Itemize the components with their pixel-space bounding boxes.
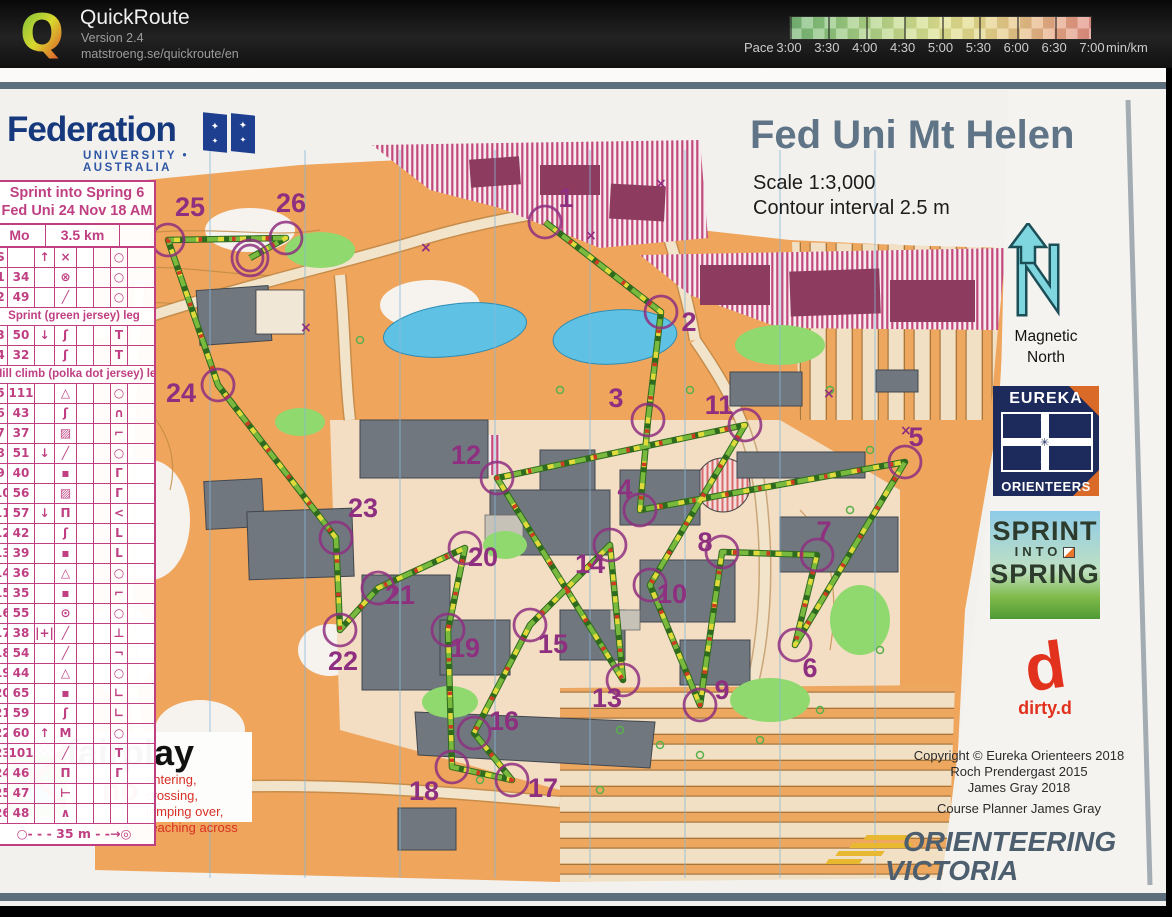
control-number: 6 — [802, 653, 817, 683]
dirtyd-letter-icon: d — [1006, 631, 1084, 700]
control-number: 12 — [451, 440, 481, 470]
control-number: 4 — [617, 474, 632, 504]
map-contour-interval: Contour interval 2.5 m — [753, 197, 950, 220]
svg-text:✦: ✦ — [212, 136, 219, 146]
pace-tick — [1055, 17, 1057, 39]
control-number: 22 — [328, 646, 358, 676]
pace-label: 6:00 — [996, 40, 1036, 55]
pace-tick — [828, 17, 830, 39]
control-number: 25 — [175, 192, 205, 222]
pace-tick — [790, 17, 792, 39]
svg-text:×: × — [420, 240, 432, 256]
control-number: 15 — [538, 629, 568, 659]
svg-text:×: × — [300, 320, 312, 336]
control-description-row: 643ʃ∩ — [0, 404, 154, 424]
control-description-row: 2547⊢ — [0, 784, 154, 804]
control-number: 5 — [908, 422, 923, 452]
pace-scale-labels: Pace3:003:304:004:305:005:306:006:307:00… — [744, 40, 1172, 58]
control-description-row: 2260↑M○ — [0, 724, 154, 744]
control-description-row: 134⊗○ — [0, 268, 154, 288]
ov-logo-line1: ORIENTEERING — [903, 826, 1116, 858]
control-description-row: 1854╱¬ — [0, 644, 154, 664]
control-number: 21 — [385, 580, 415, 610]
control-number: 10 — [657, 579, 687, 609]
quickroute-logo-icon: Q — [14, 4, 72, 64]
control-rows: S↑×○134⊗○249╱○Sprint (green jersey) leg3… — [0, 248, 154, 824]
control-number: 2 — [681, 307, 696, 337]
sprint-into-spring-logo: SPRINT INTO SPRING — [990, 511, 1100, 619]
svg-text:✦: ✦ — [240, 135, 247, 145]
map-scale: Scale 1:3,000 — [753, 172, 875, 195]
scan-paper-edge-top — [0, 68, 1166, 82]
course-planner-text: Course Planner James Gray — [900, 801, 1138, 816]
pace-label: 3:30 — [807, 40, 847, 55]
control-number: 23 — [348, 493, 378, 523]
eureka-orienteers-logo: EUREKA ✳ ✳ ✳ ✳ ✳ ORIENTEERS — [993, 386, 1099, 496]
federation-university-logo: Federation UNIVERSITY • AUSTRALIA ✦ ✦ ✦ … — [5, 110, 265, 172]
control-number: 24 — [166, 378, 196, 408]
control-description-row: 851↓╱○ — [0, 444, 154, 464]
control-number: 20 — [468, 542, 498, 572]
sprint-logo-line1: SPRINT — [990, 517, 1100, 545]
control-number: 26 — [276, 188, 306, 218]
control-number: 11 — [705, 390, 734, 420]
event-name: Sprint into Spring 6 — [0, 184, 154, 202]
pace-tick — [979, 17, 981, 39]
control-number: 16 — [489, 706, 519, 736]
app-title: QuickRoute — [80, 6, 190, 30]
control-description-row: S↑×○ — [0, 248, 154, 268]
control-description-row: 2065▪∟ — [0, 684, 154, 704]
control-number: 13 — [592, 683, 622, 713]
control-description-row: 249╱○ — [0, 288, 154, 308]
control-description-row: 1436△○ — [0, 564, 154, 584]
magnetic-north-label: Magnetic North — [998, 326, 1094, 368]
pace-gradient-bar — [789, 16, 1092, 40]
magnetic-north-icon — [1004, 223, 1070, 318]
control-description-row: 1944△○ — [0, 664, 154, 684]
ov-logo-line2: VICTORIA — [885, 855, 1018, 887]
control-number: 7 — [816, 516, 831, 546]
control-description-row: 350↓ʃΤ — [0, 326, 154, 346]
control-description-row: 1655⊙○ — [0, 604, 154, 624]
app-header: Q QuickRoute Version 2.4 matstroeng.se/q… — [0, 0, 1172, 68]
course-name: Mo — [0, 225, 46, 246]
control-description-row: 23101╱Τ — [0, 744, 154, 764]
federation-logo-text: Federation — [7, 110, 176, 150]
sprint-logo-line3: SPRING — [990, 559, 1100, 589]
control-description-row: 1738|+|╱⊥ — [0, 624, 154, 644]
app-website-link[interactable]: matstroeng.se/quickroute/en — [81, 47, 239, 61]
control-description-row: 1056▨Γ — [0, 484, 154, 504]
control-description-row: 2648∧ — [0, 804, 154, 824]
eureka-logo-title: EUREKA — [993, 390, 1099, 408]
pace-label: 3:00 — [769, 40, 809, 55]
control-description-row: 1339▪L — [0, 544, 154, 564]
federation-flag-icon: ✦ ✦ ✦ ✦ — [201, 110, 259, 158]
control-number: 1 — [558, 183, 573, 213]
quickroute-window: Q QuickRoute Version 2.4 matstroeng.se/q… — [0, 0, 1172, 917]
svg-text:✦: ✦ — [239, 120, 247, 132]
pace-tick — [866, 17, 868, 39]
scan-border-line-bottom — [0, 893, 1166, 901]
control-description-row: 1242ʃL — [0, 524, 154, 544]
control-description-row: 1157↓Π< — [0, 504, 154, 524]
fairplay-rules-text: entering, crossing, jumping over, reachi… — [146, 772, 252, 836]
svg-text:×: × — [823, 386, 835, 402]
leg-header-row: Hill climb (polka dot jersey) leg — [0, 366, 154, 384]
pace-label: min/km — [1106, 40, 1148, 55]
control-number: 17 — [528, 773, 558, 803]
scan-border-line-top — [0, 82, 1166, 89]
copyright-text: Copyright © Eureka Orienteers 2018Roch P… — [900, 748, 1138, 796]
svg-text:×: × — [585, 228, 597, 244]
pace-label: 5:30 — [958, 40, 998, 55]
pace-tick — [904, 17, 906, 39]
orienteering-flag-icon — [1063, 547, 1075, 558]
dirtyd-logo: d dirty.d — [1010, 636, 1080, 719]
control-number: 18 — [409, 776, 439, 806]
control-description-row: 5111△○ — [0, 384, 154, 404]
event-date: Fed Uni 24 Nov 18 AM — [0, 202, 154, 220]
control-number: 9 — [714, 675, 729, 705]
leg-header-row: Sprint (green jersey) leg — [0, 308, 154, 326]
control-description-sheet: Sprint into Spring 6 Fed Uni 24 Nov 18 A… — [0, 180, 156, 846]
control-description-row: 2446ΠΓ — [0, 764, 154, 784]
finish-distance-row: ○- - - 35 m - -→◎ — [0, 824, 154, 844]
control-description-row: 940▪Γ — [0, 464, 154, 484]
control-sheet-title: Sprint into Spring 6 Fed Uni 24 Nov 18 A… — [0, 182, 154, 225]
control-number: 8 — [697, 527, 712, 557]
control-description-row: 737▨⌐ — [0, 424, 154, 444]
q-letter: Q — [20, 4, 64, 64]
sprint-logo-line2: INTO — [990, 545, 1100, 559]
control-number: 14 — [575, 549, 605, 579]
pace-tick — [1017, 17, 1019, 39]
course-length: 3.5 km — [46, 225, 120, 246]
pace-label: 4:00 — [845, 40, 885, 55]
svg-text:✦: ✦ — [211, 121, 219, 133]
eureka-logo-subtitle: ORIENTEERS — [993, 479, 1099, 494]
control-description-row: 1535▪⌐ — [0, 584, 154, 604]
eureka-flag-icon: ✳ ✳ ✳ ✳ ✳ — [1001, 412, 1093, 472]
map-title: Fed Uni Mt Helen — [750, 113, 1074, 158]
pace-label: 5:00 — [921, 40, 961, 55]
course-info-row: Mo 3.5 km — [0, 225, 154, 248]
pace-label: 4:30 — [883, 40, 923, 55]
pace-tick — [1091, 17, 1093, 39]
control-number: 3 — [608, 383, 623, 413]
svg-text:×: × — [655, 176, 667, 192]
control-number: 19 — [450, 633, 480, 663]
control-description-row: 432ʃΤ — [0, 346, 154, 366]
pace-tick — [942, 17, 944, 39]
control-description-row: 2159ʃ∟ — [0, 704, 154, 724]
app-version: Version 2.4 — [81, 31, 144, 45]
pace-label: 6:30 — [1034, 40, 1074, 55]
